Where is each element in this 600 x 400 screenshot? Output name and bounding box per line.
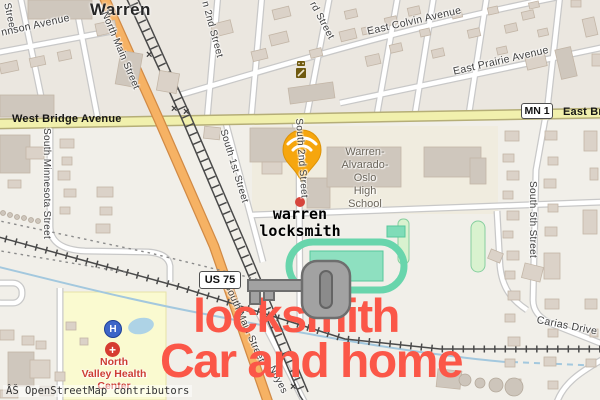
street-label-west-bridge: West Bridge Avenue: [12, 113, 122, 125]
railroad-crossing-icon: ×: [183, 106, 189, 118]
helipad-icon: H: [104, 320, 122, 338]
street-label-south-5th: South 5th Street: [527, 181, 538, 258]
headline-car-and-home: Car and home: [160, 338, 462, 386]
map-viewport[interactable]: Warren Street nnson Avenue North Main St…: [0, 0, 600, 400]
poi-icon: [295, 61, 307, 80]
school-label: Warren- Alvarado- Oslo High School: [326, 146, 404, 211]
street-label-south-minnesota: South Minnesota Street: [41, 128, 52, 239]
street-label-east-bridge: East Br: [563, 106, 600, 118]
pin-caption: warren locksmith: [230, 206, 370, 240]
mn1-route-shield: MN 1: [521, 103, 553, 119]
attribution: ÂŠ OpenStreetMap contributors: [3, 385, 192, 397]
hospital-cross-icon: +: [105, 342, 120, 357]
us75-route-shield: US 75: [199, 271, 241, 289]
railroad-crossing-icon: ×: [146, 49, 152, 61]
key-icon: [242, 256, 354, 326]
railroad-crossing-icon: ×: [171, 103, 177, 115]
